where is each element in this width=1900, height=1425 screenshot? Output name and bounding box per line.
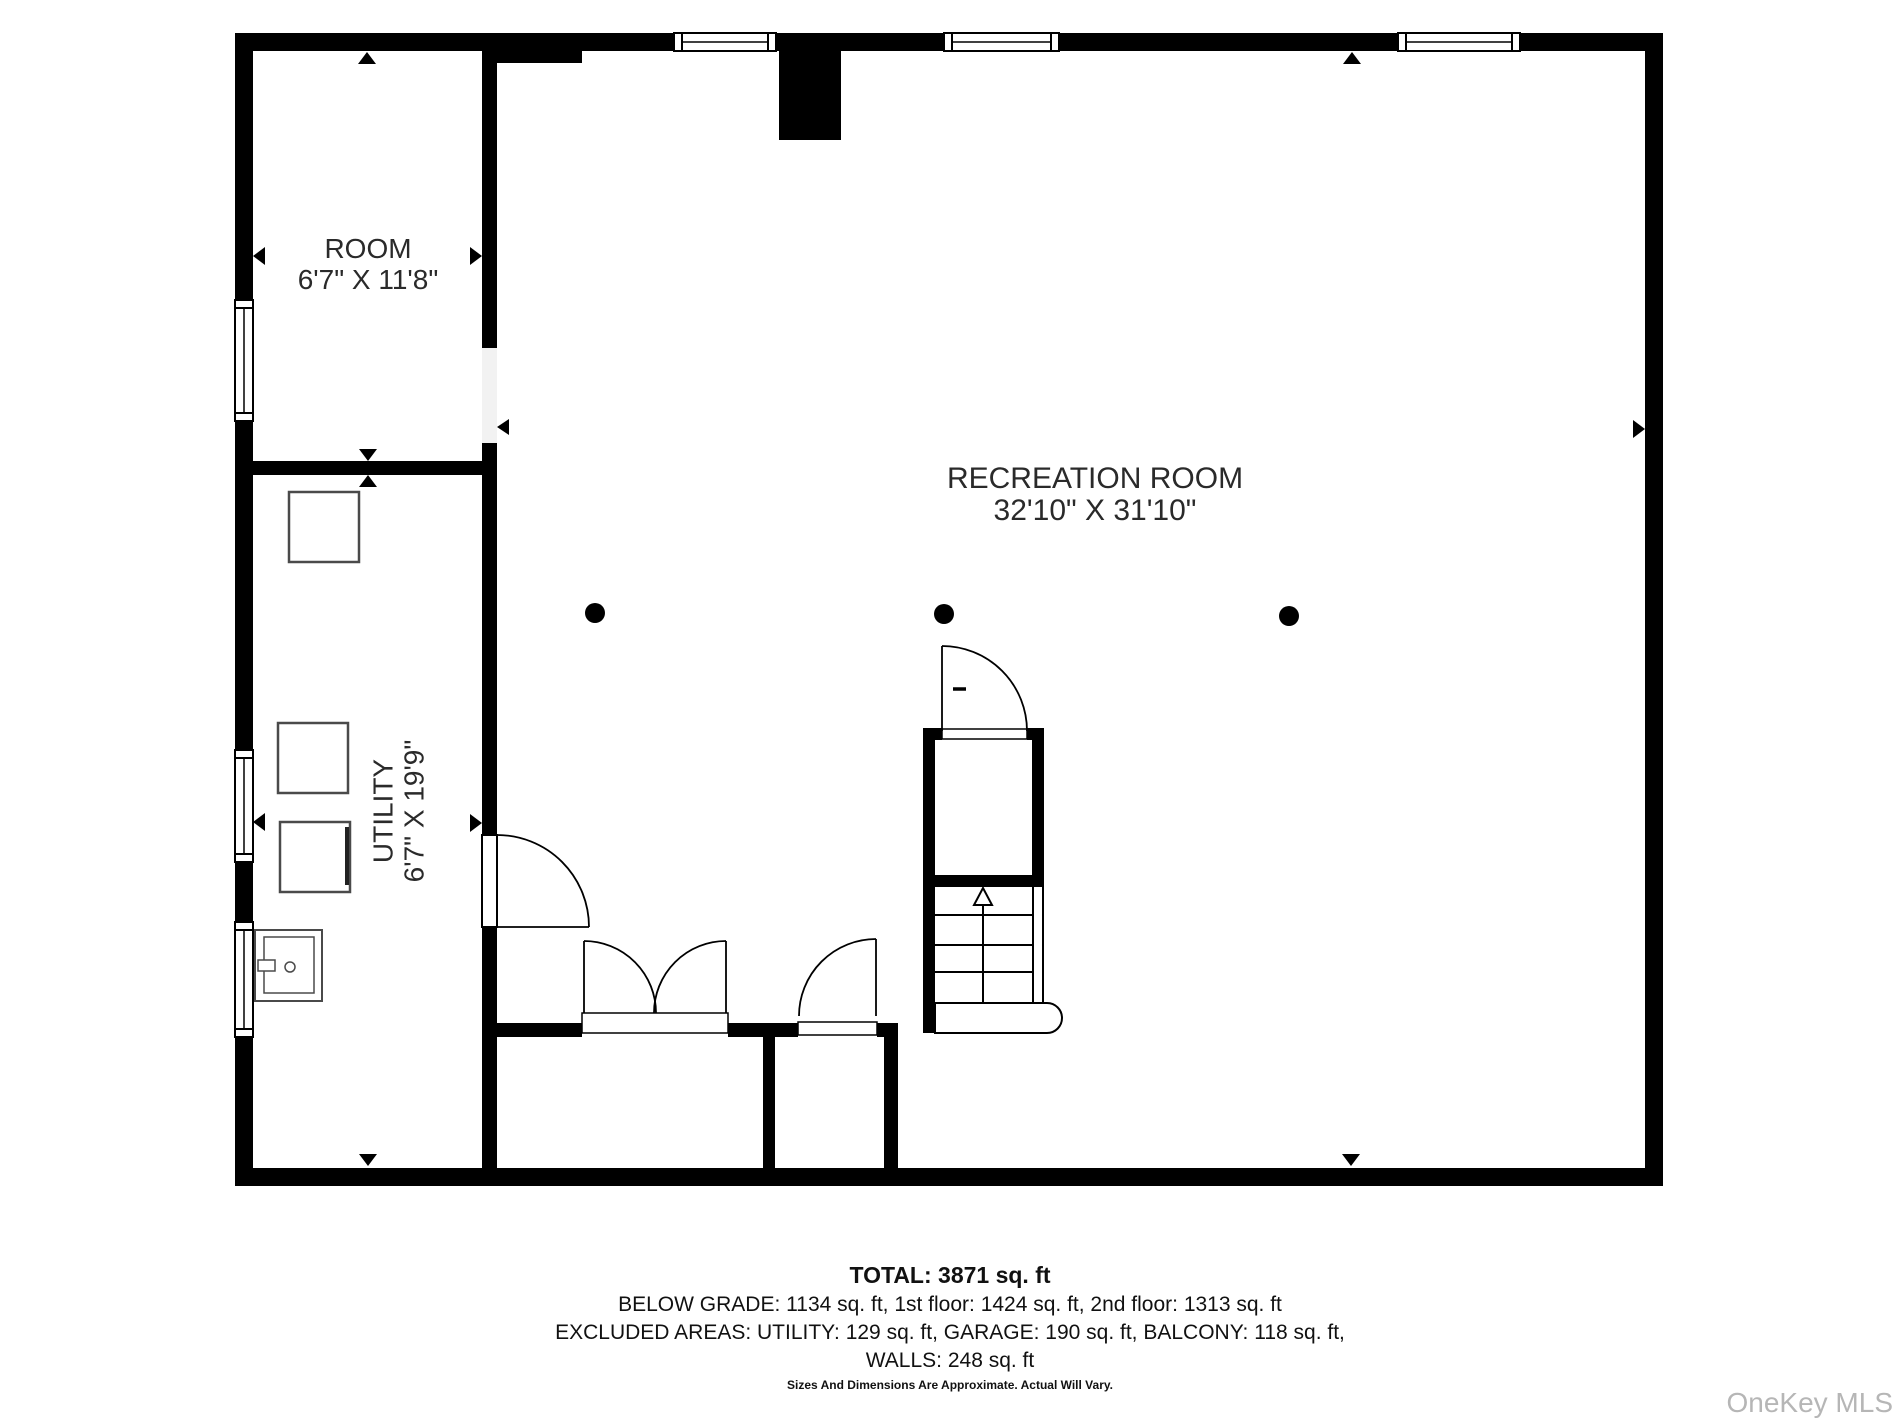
recreation-room-name: RECREATION ROOM [947, 462, 1243, 495]
door-single-closet [798, 939, 877, 1035]
wall-stair-divider [923, 875, 1044, 887]
column-dot-3 [1279, 606, 1299, 626]
wall-left-1 [235, 33, 253, 300]
room-dimensions: 6'7" X 11'8" [298, 264, 439, 295]
window-left-2 [235, 750, 253, 862]
room-name: ROOM [324, 233, 411, 264]
wall-room-right [482, 51, 497, 348]
wall-room-utility-divider [253, 461, 482, 475]
wall-bottom [235, 1168, 1663, 1186]
floorplan-canvas: ROOM 6'7" X 11'8" RECREATION ROOM 32'10"… [0, 0, 1900, 1425]
fixture-appliance-1 [289, 492, 359, 562]
wall-top-3 [1059, 33, 1398, 51]
utility-room-name: UTILITY [368, 759, 399, 864]
wall-closet-right [884, 1037, 898, 1168]
fixture-appliance-2 [278, 723, 348, 793]
column-dot-2 [934, 604, 954, 624]
wall-closet-top-1 [497, 1023, 582, 1037]
wall-closet-divider [763, 1037, 775, 1168]
marker-room-opening [497, 419, 509, 435]
stair-up-arrow [974, 888, 992, 905]
wall-stair-right [1032, 728, 1044, 885]
wall-stair-top-left [923, 728, 942, 740]
wall-left-3 [235, 862, 253, 922]
marker-divider-top [359, 449, 377, 461]
room-labels: ROOM 6'7" X 11'8" RECREATION ROOM 32'10"… [298, 233, 1243, 882]
marker-top-room [358, 52, 376, 64]
windows [235, 33, 1520, 1037]
floorplan-page: ROOM 6'7" X 11'8" RECREATION ROOM 32'10"… [0, 0, 1900, 1425]
footer-disclaimer: Sizes And Dimensions Are Approximate. Ac… [787, 1378, 1113, 1392]
wall-top-4 [1520, 33, 1663, 51]
marker-top-rec [1343, 52, 1361, 64]
staircase [935, 887, 1062, 1033]
watermark-onekey-mls: OneKey MLS [1726, 1387, 1893, 1418]
utility-room-dimensions: 6'7" X 19'9" [399, 740, 430, 883]
wall-top-1 [235, 33, 674, 51]
marker-right-wall [1633, 420, 1645, 438]
wall-left-2 [235, 421, 253, 750]
recreation-room-dimensions: 32'10" X 31'10" [994, 494, 1197, 527]
marker-divider-bottom [359, 475, 377, 487]
door-stairs [942, 646, 1027, 739]
fixture-utility-sink [255, 930, 322, 1001]
doors [482, 646, 1027, 1035]
wall-utility-right-lower [482, 927, 497, 1168]
column-dot-1 [585, 603, 605, 623]
window-top-2 [944, 33, 1059, 51]
marker-room-right [470, 247, 482, 265]
wall-left-4 [235, 1037, 253, 1186]
door-double-closet [582, 941, 728, 1033]
interior-walls [253, 51, 1044, 1168]
footer-total: TOTAL: 3871 sq. ft [849, 1262, 1050, 1288]
footer-walls: WALLS: 248 sq. ft [866, 1349, 1035, 1372]
footer-stats: TOTAL: 3871 sq. ft BELOW GRADE: 1134 sq.… [555, 1262, 1345, 1392]
wall-right [1645, 33, 1663, 1186]
window-left-3 [235, 922, 253, 1037]
wall-closet-top-2 [728, 1023, 798, 1037]
room-opening [482, 348, 497, 443]
window-top-3 [1398, 33, 1520, 51]
footer-excluded-areas: EXCLUDED AREAS: UTILITY: 129 sq. ft, GAR… [555, 1321, 1345, 1344]
window-left-1 [235, 300, 253, 421]
support-columns [585, 603, 1299, 626]
utility-fixtures [255, 492, 359, 1001]
marker-bottom-right [1342, 1154, 1360, 1166]
marker-utility-left [253, 813, 265, 831]
marker-room-left [253, 247, 265, 265]
fixture-appliance-3 [280, 822, 350, 892]
footer-below-grade: BELOW GRADE: 1134 sq. ft, 1st floor: 142… [618, 1293, 1282, 1316]
window-top-1 [674, 33, 776, 51]
wall-utility-right-upper [482, 443, 497, 835]
wall-closet-top-3 [877, 1023, 898, 1037]
marker-bottom-left [359, 1154, 377, 1166]
chimney-block [779, 33, 841, 140]
door-utility [482, 835, 589, 927]
stair-landing [935, 1003, 1062, 1033]
marker-utility-right [470, 814, 482, 832]
